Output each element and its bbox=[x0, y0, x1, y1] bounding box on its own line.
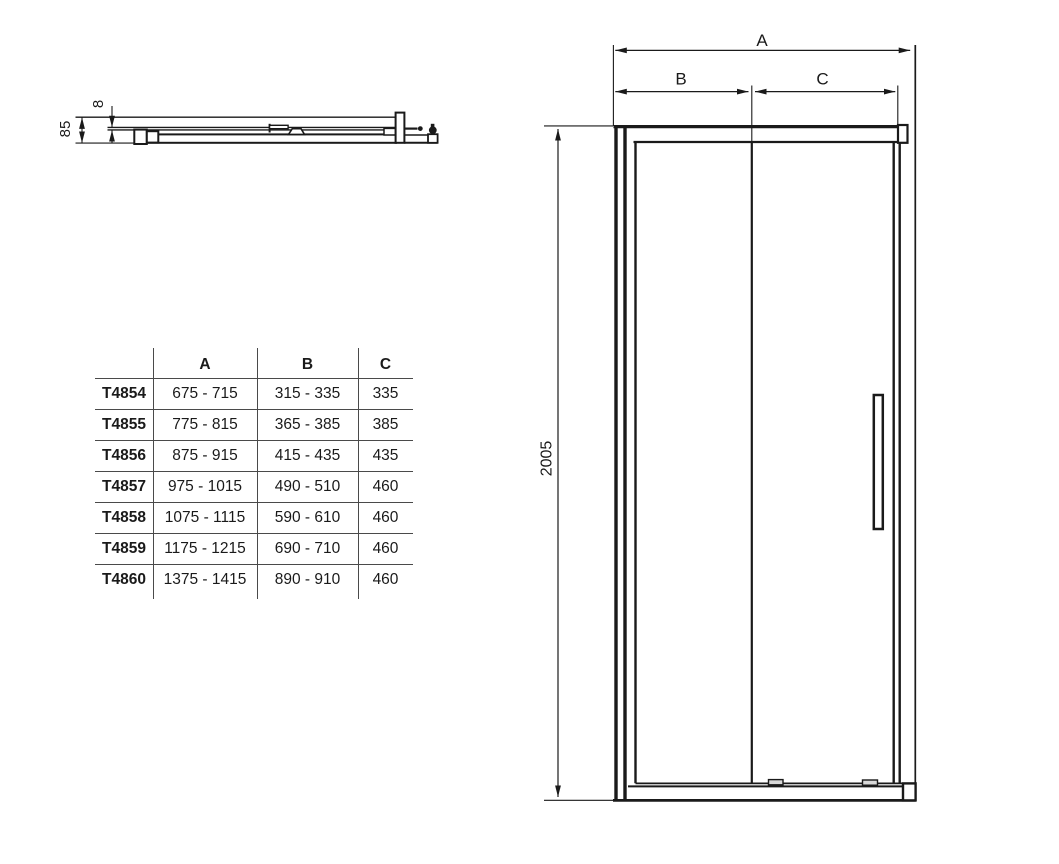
table-row: T4857 975 - 1015 490 - 510 460 bbox=[95, 471, 413, 502]
c-cell: 385 bbox=[358, 409, 413, 440]
b-cell: 690 - 710 bbox=[257, 533, 358, 564]
profile-knob-ball bbox=[430, 127, 436, 133]
model-cell: T4857 bbox=[95, 471, 153, 502]
dim-a-label: A bbox=[756, 31, 768, 50]
table-rule-vertical-3 bbox=[358, 348, 359, 599]
a-cell: 1175 - 1215 bbox=[153, 533, 257, 564]
a-cell: 1075 - 1115 bbox=[153, 502, 257, 533]
door-handle bbox=[874, 395, 883, 529]
table-row: T4860 1375 - 1415 890 - 910 460 bbox=[95, 564, 413, 595]
model-cell: T4856 bbox=[95, 440, 153, 471]
model-cell: T4854 bbox=[95, 378, 153, 409]
b-cell: 315 - 335 bbox=[257, 378, 358, 409]
dim-c-label: C bbox=[816, 70, 828, 89]
profile-knob-base bbox=[428, 134, 438, 143]
profile-wall-bracket-inner bbox=[147, 131, 159, 142]
profile-dim-8-label: 8 bbox=[90, 100, 107, 108]
table-row: T4856 875 - 915 415 - 435 435 bbox=[95, 440, 413, 471]
table-rule-vertical-1 bbox=[153, 348, 154, 599]
c-cell: 335 bbox=[358, 378, 413, 409]
b-cell: 415 - 435 bbox=[257, 440, 358, 471]
table-rule-vertical-2 bbox=[257, 348, 258, 599]
profile-support-bracket bbox=[384, 128, 396, 135]
model-cell: T4858 bbox=[95, 502, 153, 533]
dim-height-label: 2005 bbox=[539, 441, 556, 477]
table-row: T4859 1175 - 1215 690 - 710 460 bbox=[95, 533, 413, 564]
c-cell: 460 bbox=[358, 502, 413, 533]
bottom-guide-right bbox=[863, 780, 878, 785]
bottom-rail-right-cap bbox=[903, 783, 916, 800]
model-cell: T4855 bbox=[95, 409, 153, 440]
profile-clamp-wedge bbox=[289, 129, 305, 135]
header-c: C bbox=[358, 352, 413, 378]
header-b: B bbox=[257, 352, 358, 378]
b-cell: 490 - 510 bbox=[257, 471, 358, 502]
bottom-guide-left bbox=[769, 780, 784, 785]
header-a: A bbox=[153, 352, 257, 378]
profile-rail-bar bbox=[135, 134, 396, 142]
a-cell: 675 - 715 bbox=[153, 378, 257, 409]
a-cell: 975 - 1015 bbox=[153, 471, 257, 502]
profile-clamp-flange bbox=[270, 125, 289, 128]
profile-end-post bbox=[396, 113, 405, 143]
profile-dim-85-label: 85 bbox=[57, 121, 74, 138]
front-view: A B C 2005 bbox=[539, 31, 916, 801]
size-table-grid: A B C T4854 675 - 715 315 - 335 335 T485… bbox=[95, 352, 413, 595]
technical-drawing-page: 8 85 bbox=[0, 0, 1059, 864]
b-cell: 365 - 385 bbox=[257, 409, 358, 440]
a-cell: 1375 - 1415 bbox=[153, 564, 257, 595]
a-cell: 775 - 815 bbox=[153, 409, 257, 440]
c-cell: 435 bbox=[358, 440, 413, 471]
model-cell: T4860 bbox=[95, 564, 153, 595]
size-table: A B C T4854 675 - 715 315 - 335 335 T485… bbox=[95, 352, 413, 595]
a-cell: 875 - 915 bbox=[153, 440, 257, 471]
b-cell: 890 - 910 bbox=[257, 564, 358, 595]
profile-view: 8 85 bbox=[57, 100, 438, 144]
model-cell: T4859 bbox=[95, 533, 153, 564]
table-row: T4855 775 - 815 365 - 385 385 bbox=[95, 409, 413, 440]
c-cell: 460 bbox=[358, 471, 413, 502]
dim-b-label: B bbox=[675, 70, 686, 89]
c-cell: 460 bbox=[358, 564, 413, 595]
table-row: T4854 675 - 715 315 - 335 335 bbox=[95, 378, 413, 409]
table-header-row: A B C bbox=[95, 352, 413, 378]
profile-rod-ball bbox=[418, 126, 423, 131]
rail-right-cap bbox=[898, 125, 908, 143]
profile-wall-bracket-outer bbox=[134, 130, 147, 144]
header-model bbox=[95, 352, 153, 378]
b-cell: 590 - 610 bbox=[257, 502, 358, 533]
table-row: T4858 1075 - 1115 590 - 610 460 bbox=[95, 502, 413, 533]
c-cell: 460 bbox=[358, 533, 413, 564]
